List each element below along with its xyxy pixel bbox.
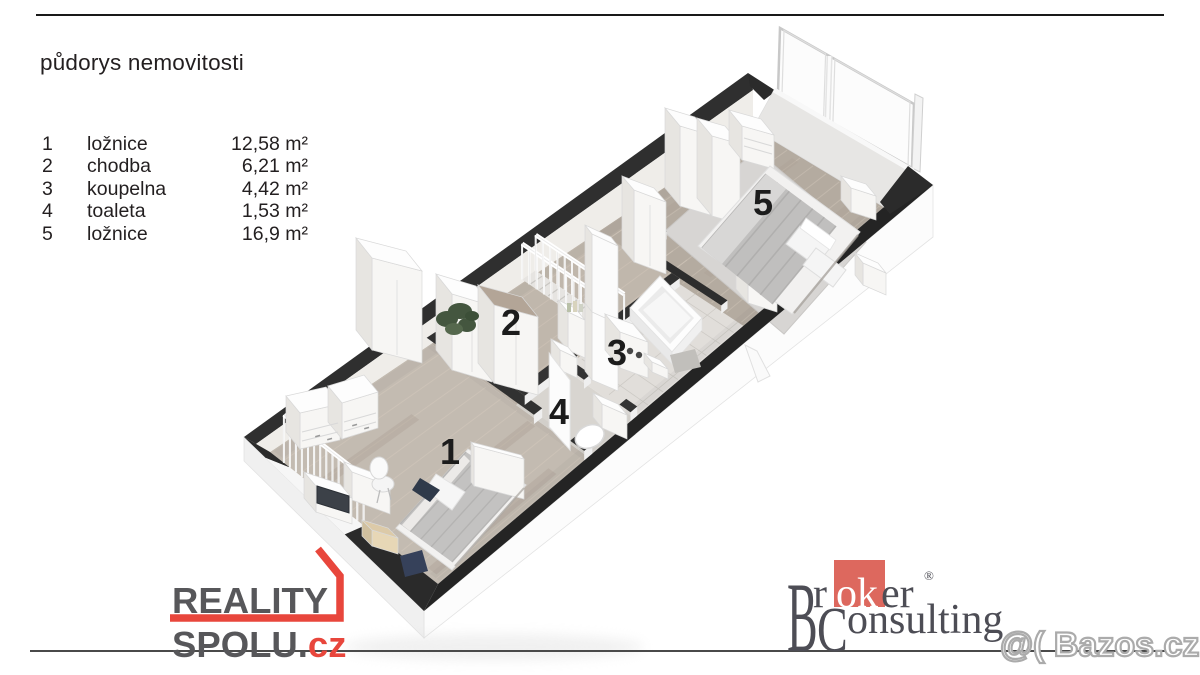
svg-text:3: 3: [607, 332, 627, 373]
svg-text:®: ®: [924, 568, 934, 583]
svg-text:SPOLU.cz: SPOLU.cz: [172, 624, 346, 663]
svg-text:4: 4: [549, 391, 569, 432]
svg-text:C: C: [817, 595, 848, 660]
svg-text:REALITY: REALITY: [172, 580, 328, 621]
svg-text:5: 5: [753, 182, 773, 223]
svg-text:onsulting: onsulting: [847, 597, 1003, 643]
svg-text:2: 2: [501, 302, 521, 343]
svg-text:1: 1: [440, 431, 460, 472]
